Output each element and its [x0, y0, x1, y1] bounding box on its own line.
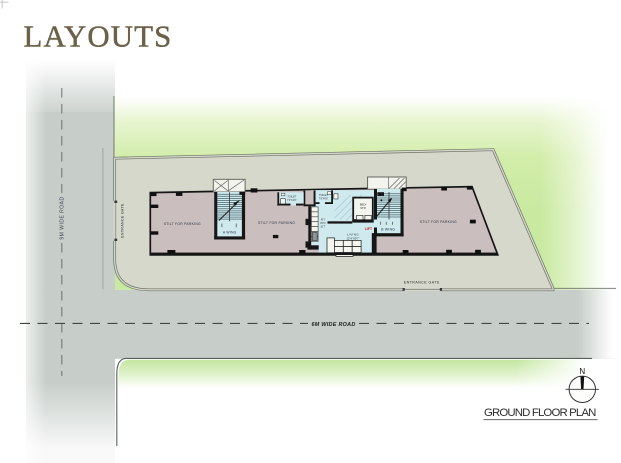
svg-text:STILT FOR PARKING: STILT FOR PARKING — [258, 221, 295, 225]
svg-text:7'0"X4'0": 7'0"X4'0" — [287, 199, 297, 202]
svg-text:7'5"X4'0": 7'5"X4'0" — [319, 198, 329, 201]
svg-text:TOILET: TOILET — [287, 194, 296, 198]
svg-text:ENTRANCE GATE: ENTRANCE GATE — [121, 203, 125, 238]
svg-text:LIFT: LIFT — [365, 227, 373, 231]
svg-text:8'0"X: 8'0"X — [320, 222, 326, 225]
svg-text:TOILET: TOILET — [319, 193, 328, 197]
svg-text:9M WIDE ROAD: 9M WIDE ROAD — [59, 196, 65, 239]
svg-text:ENTRANCE GATE: ENTRANCE GATE — [404, 281, 440, 285]
svg-text:STILT FOR PARKING: STILT FOR PARKING — [420, 220, 457, 224]
svg-text:GROUND FLOOR PLAN: GROUND FLOOR PLAN — [484, 407, 596, 419]
svg-text:KIT.: KIT. — [321, 217, 326, 221]
svg-text:N: N — [579, 367, 585, 376]
svg-text:6M WIDE ROAD: 6M WIDE ROAD — [311, 322, 355, 328]
svg-text:LAYOUTS: LAYOUTS — [24, 19, 173, 53]
svg-text:B WING: B WING — [381, 228, 395, 232]
svg-text:STR: STR — [360, 206, 366, 210]
svg-text:10'7": 10'7" — [320, 226, 325, 229]
svg-text:STILT FOR PARKING: STILT FOR PARKING — [164, 222, 201, 226]
svg-text:A WING: A WING — [223, 230, 237, 234]
